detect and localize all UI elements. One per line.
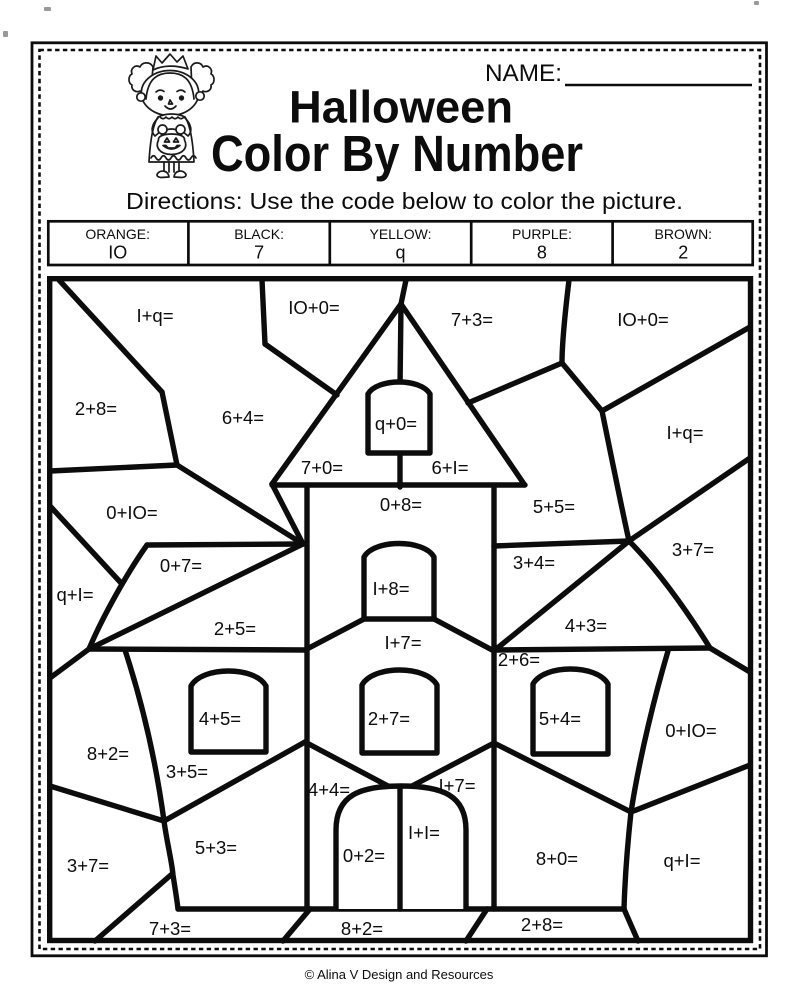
svg-text:IO+0=: IO+0= — [617, 309, 668, 330]
svg-text:IO: IO — [108, 243, 127, 263]
svg-text:6+4=: 6+4= — [222, 407, 264, 428]
svg-text:© Alina V Design and Resources: © Alina V Design and Resources — [305, 967, 494, 982]
svg-text:2+5=: 2+5= — [214, 618, 256, 639]
svg-text:0+7=: 0+7= — [160, 555, 202, 576]
svg-text:8+2=: 8+2= — [87, 743, 129, 764]
svg-text:BROWN:: BROWN: — [655, 226, 713, 242]
svg-text:q+0=: q+0= — [375, 413, 417, 434]
svg-text:I+7=: I+7= — [384, 632, 421, 653]
svg-text:0+IO=: 0+IO= — [106, 502, 157, 523]
svg-text:q+I=: q+I= — [56, 584, 93, 605]
svg-text:3+4=: 3+4= — [513, 552, 555, 573]
svg-text:ORANGE:: ORANGE: — [85, 226, 150, 242]
svg-text:IO+0=: IO+0= — [288, 297, 339, 318]
svg-text:0+8=: 0+8= — [380, 494, 422, 515]
svg-text:2: 2 — [678, 243, 688, 263]
svg-text:7+0=: 7+0= — [301, 457, 343, 478]
svg-text:2+8=: 2+8= — [521, 914, 563, 935]
svg-text:7+3=: 7+3= — [451, 309, 493, 330]
svg-text:7: 7 — [254, 243, 264, 263]
svg-text:2+7=: 2+7= — [368, 708, 410, 729]
svg-text:0+2=: 0+2= — [343, 845, 385, 866]
svg-text:8+0=: 8+0= — [536, 848, 578, 869]
svg-text:6+I=: 6+I= — [431, 457, 468, 478]
svg-text:4+5=: 4+5= — [199, 708, 241, 729]
svg-text:4+3=: 4+3= — [565, 615, 607, 636]
svg-text:I+q=: I+q= — [666, 422, 703, 443]
svg-text:BLACK:: BLACK: — [234, 226, 284, 242]
svg-text:3+7=: 3+7= — [67, 855, 109, 876]
svg-text:PURPLE:: PURPLE: — [512, 226, 572, 242]
svg-text:I+I=: I+I= — [408, 822, 440, 843]
svg-text:I+7=: I+7= — [438, 775, 475, 796]
svg-text:2+8=: 2+8= — [75, 398, 117, 419]
svg-text:q+I=: q+I= — [663, 850, 700, 871]
svg-text:5+3=: 5+3= — [195, 837, 237, 858]
svg-text:8+2=: 8+2= — [341, 918, 383, 939]
svg-text:Color By Number: Color By Number — [211, 125, 583, 182]
svg-text:2+6=: 2+6= — [498, 649, 540, 670]
svg-text:I+8=: I+8= — [372, 578, 409, 599]
svg-text:4+4=: 4+4= — [308, 779, 350, 800]
svg-text:I+q=: I+q= — [136, 305, 173, 326]
svg-text:YELLOW:: YELLOW: — [370, 226, 432, 242]
svg-text:0+IO=: 0+IO= — [665, 720, 716, 741]
svg-text:5+4=: 5+4= — [539, 708, 581, 729]
svg-text:8: 8 — [537, 243, 547, 263]
svg-text:7+3=: 7+3= — [149, 918, 191, 939]
svg-text:3+7=: 3+7= — [672, 539, 714, 560]
svg-text:Directions: Use the code below: Directions: Use the code below to color … — [126, 188, 683, 214]
svg-text:5+5=: 5+5= — [533, 496, 575, 517]
svg-text:3+5=: 3+5= — [166, 761, 208, 782]
svg-text:q: q — [395, 243, 405, 263]
